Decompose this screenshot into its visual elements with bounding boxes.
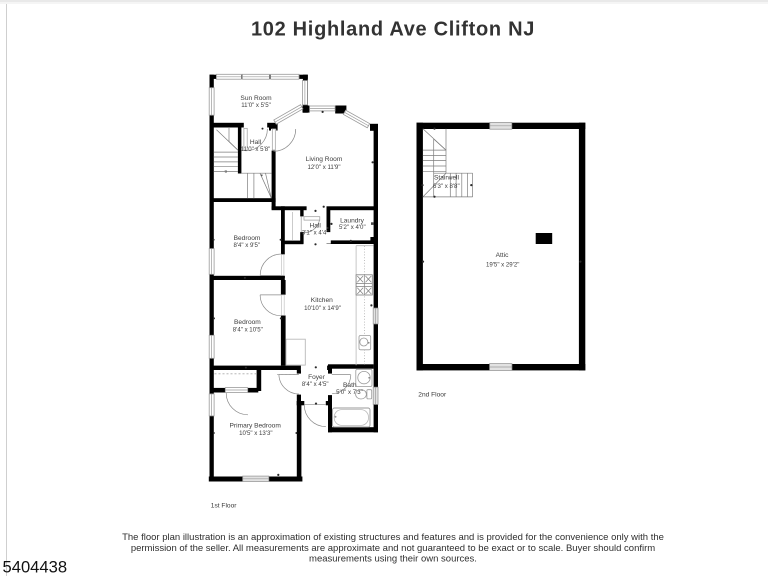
svg-text:Primary Bedroom: Primary Bedroom [230, 423, 282, 430]
svg-text:Living Room: Living Room [306, 156, 343, 163]
svg-text:Foyer: Foyer [308, 374, 326, 381]
svg-text:1st Floor: 1st Floor [211, 503, 237, 510]
svg-text:8'4" x 4'5": 8'4" x 4'5" [302, 381, 329, 388]
svg-text:8'4" x 9'5": 8'4" x 9'5" [233, 242, 260, 249]
svg-text:10'5" x 13'3": 10'5" x 13'3" [239, 430, 272, 437]
svg-text:11'0" x 5'8": 11'0" x 5'8" [241, 146, 271, 153]
svg-text:Hall: Hall [250, 139, 262, 146]
svg-text:102 Highland Ave Clifton NJ: 102 Highland Ave Clifton NJ [251, 19, 535, 41]
svg-text:5404438: 5404438 [3, 558, 68, 576]
svg-text:5'0" x 7'3": 5'0" x 7'3" [336, 389, 363, 396]
svg-text:Hall: Hall [310, 223, 322, 230]
svg-text:11'0" x 5'5": 11'0" x 5'5" [241, 102, 271, 109]
svg-text:Bath: Bath [343, 382, 357, 389]
svg-text:Kitchen: Kitchen [311, 297, 333, 304]
svg-text:The floor plan illustration is: The floor plan illustration is an approx… [122, 532, 664, 543]
svg-text:10'10" x 14'9": 10'10" x 14'9" [304, 305, 341, 312]
svg-text:3'1" x 4'4": 3'1" x 4'4" [302, 230, 329, 237]
svg-text:2nd Floor: 2nd Floor [418, 391, 447, 398]
svg-text:Stairwell: Stairwell [434, 175, 459, 182]
svg-text:5'2" x 4'0": 5'2" x 4'0" [339, 224, 366, 231]
svg-text:6'3" x 8'8": 6'3" x 8'8" [433, 183, 460, 190]
svg-text:19'5" x 29'2": 19'5" x 29'2" [486, 262, 519, 269]
svg-text:Attic: Attic [496, 252, 510, 259]
svg-text:Bedroom: Bedroom [234, 319, 261, 326]
svg-text:12'0" x 11'9": 12'0" x 11'9" [308, 164, 341, 171]
svg-text:measurements using their own s: measurements using their own sources. [309, 554, 477, 565]
svg-text:9: 9 [225, 169, 228, 175]
svg-text:Bedroom: Bedroom [234, 235, 261, 242]
svg-text:Sun Room: Sun Room [240, 95, 272, 102]
svg-text:8'4" x 10'5": 8'4" x 10'5" [233, 327, 263, 334]
svg-text:permission of the seller. All: permission of the seller. All measuremen… [131, 543, 655, 554]
